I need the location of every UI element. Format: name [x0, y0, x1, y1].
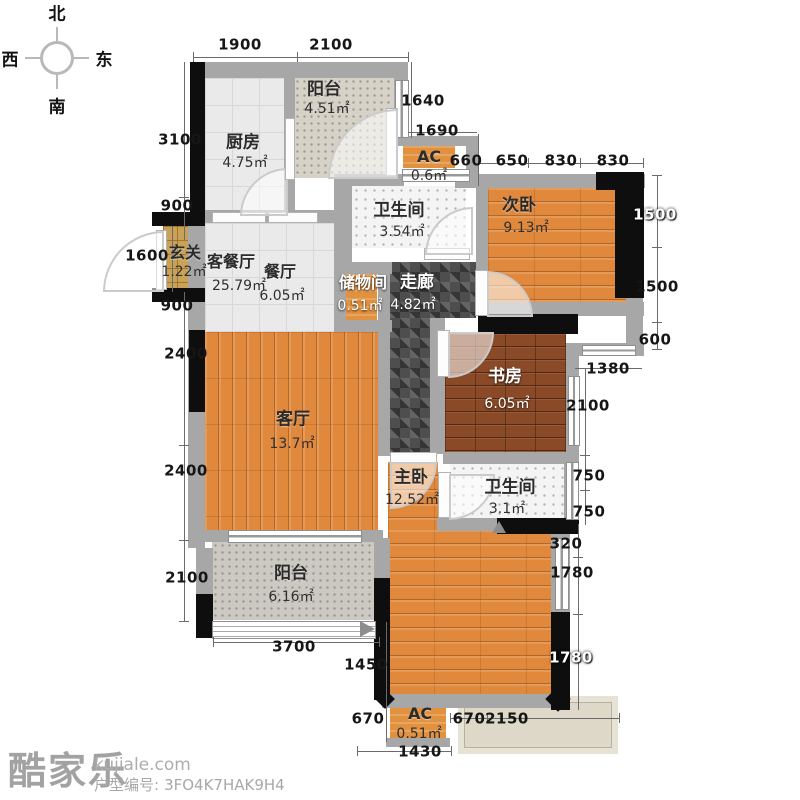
dim-tick [379, 637, 380, 647]
compass-south-label: 南 [49, 93, 66, 118]
balcony-arrow-icon [360, 621, 375, 637]
room-balcony-top-name: 阳台 [307, 82, 341, 99]
kitchen-divider-door-leaf [285, 118, 295, 180]
dim-label-900b: 900 [161, 299, 194, 314]
dim-tick [179, 445, 189, 446]
compass-west-label: 西 [2, 46, 19, 71]
dim-tick [408, 52, 409, 62]
dim-tick [619, 713, 620, 723]
wall-balcony-bottom-right-up [374, 538, 390, 580]
dim-label-1500a: 1500 [633, 208, 677, 223]
dim-label-830b: 830 [597, 154, 630, 169]
room-ac-top-name: AC [417, 149, 441, 165]
dim-tick [580, 490, 590, 491]
dim-label-670a: 670 [352, 712, 385, 727]
dim-tick [451, 746, 452, 756]
room-study-name: 书房 [488, 369, 522, 386]
room-entry-name: 玄关 [169, 245, 201, 261]
balcony-bottom-slider [228, 530, 362, 543]
dim-label-2400a: 2400 [164, 347, 208, 362]
dim-tick [193, 52, 194, 62]
corridor-floor-v [390, 318, 430, 452]
dim-label-1640: 1640 [401, 94, 445, 109]
room-ac-bottom-name: AC [408, 706, 432, 722]
compass-circle-icon [40, 41, 74, 75]
room-storage-name: 储物间 [339, 275, 387, 291]
dim-label-2100-top: 2100 [309, 38, 353, 53]
window-step [582, 345, 636, 356]
room-bath-top-name: 卫生间 [374, 203, 425, 220]
window-balcony-bottom-band [212, 621, 376, 639]
living-floor [205, 332, 378, 530]
dim-label-1780a: 1780 [550, 566, 594, 581]
dim-label-1600: 1600 [125, 249, 169, 264]
dim-tick [450, 713, 451, 723]
room-master-area: 12.52㎡ [385, 493, 439, 507]
dim-label-2100-left: 2100 [165, 571, 209, 586]
room-corridor-name: 走廊 [400, 275, 434, 292]
dim-tick [652, 175, 662, 176]
dim-line [386, 697, 387, 742]
dim-line [193, 57, 408, 58]
room-bath-top-area: 3.54㎡ [379, 225, 424, 239]
bath-arrow-icon [492, 521, 506, 533]
room-living-dining-name: 客餐厅 [207, 254, 255, 270]
dim-label-830a: 830 [545, 154, 578, 169]
room-bedroom2-area: 9.13㎡ [503, 221, 548, 235]
room-kitchen-name: 厨房 [226, 135, 260, 152]
wall-bath-top-left [334, 174, 352, 274]
wall-bath-bottom-top [443, 452, 579, 464]
room-living-dining-area: 25.79㎡ [212, 279, 266, 293]
dim-label-2400b: 2400 [164, 464, 208, 479]
dim-tick [179, 621, 189, 622]
dim-tick [580, 455, 590, 456]
dim-tick [573, 614, 583, 615]
floorplan-canvas: 北 西 东 南 [0, 0, 800, 800]
room-ac-top-area: 0.6㎡ [411, 169, 447, 183]
compass-east-label: 东 [96, 46, 113, 71]
wall-black-left-mid [189, 330, 205, 412]
dim-tick [297, 52, 298, 62]
dim-label-670b: 670 [453, 712, 486, 727]
dim-label-3700: 3700 [272, 640, 316, 655]
room-corridor-area: 4.82㎡ [390, 298, 435, 312]
room-living-area: 13.7㎡ [269, 437, 314, 451]
dim-tick [179, 540, 189, 541]
dim-tick [652, 349, 662, 350]
dim-tick [580, 158, 581, 168]
dim-tick [643, 158, 644, 168]
wall-bath-bottom-left-low [437, 518, 499, 531]
dim-label-900a: 900 [161, 199, 194, 214]
room-master-name: 主卧 [394, 470, 428, 487]
dim-label-3100: 3100 [158, 133, 202, 148]
dim-label-1430: 1430 [398, 745, 442, 760]
dim-label-2150: 2150 [485, 712, 529, 727]
dim-tick [213, 637, 214, 647]
dim-label-1450: 1450 [344, 658, 388, 673]
room-dining-name: 餐厅 [264, 264, 296, 280]
room-study-area: 6.05㎡ [484, 397, 529, 411]
dim-tick [652, 247, 662, 248]
dim-label-320: 320 [550, 537, 583, 552]
room-balcony-bottom-area: 6.16㎡ [268, 590, 313, 604]
wall-black-study-top [478, 314, 578, 334]
plan-code-line: 户型编号: 3FO4K7HAK9H4 [94, 778, 285, 793]
plan-code-value: 3FO4K7HAK9H4 [164, 778, 285, 793]
room-bath-bottom-name: 卫生间 [485, 480, 536, 497]
dim-label-750a: 750 [573, 469, 606, 484]
dim-label-1690: 1690 [415, 124, 459, 139]
kujiale-site-url: kujiale.com [94, 757, 191, 774]
dim-label-1380: 1380 [586, 362, 630, 377]
compass-north-label: 北 [49, 0, 66, 25]
wall-top [190, 62, 408, 78]
dim-tick [357, 746, 358, 756]
dim-label-660: 660 [450, 154, 483, 169]
dim-tick [573, 557, 583, 558]
dim-line [657, 175, 658, 350]
wall-black-bath-bottom [497, 518, 579, 534]
room-storage-area: 0.51㎡ [337, 299, 382, 313]
room-balcony-bottom-name: 阳台 [274, 566, 308, 583]
master-floor-main [388, 530, 553, 695]
wall-black-balcony-bottom-left [196, 594, 213, 638]
room-bath-bottom-area: 3.1㎡ [489, 502, 525, 516]
dim-tick [652, 322, 662, 323]
room-dining-area: 6.05㎡ [259, 289, 304, 303]
dim-label-1900: 1900 [218, 38, 262, 53]
room-bedroom2-name: 次卧 [502, 198, 536, 215]
plan-code-label: 户型编号: [94, 778, 159, 793]
dim-label-600: 600 [639, 333, 672, 348]
room-living-name: 客厅 [276, 412, 310, 429]
wall-bedroom2-left [476, 188, 488, 272]
dim-label-650: 650 [496, 154, 529, 169]
dim-label-750b: 750 [573, 505, 606, 520]
room-kitchen-area: 4.75㎡ [222, 156, 267, 170]
dim-label-1500b: 1500 [635, 280, 679, 295]
dim-label-2100-right: 2100 [566, 399, 610, 414]
dim-line [585, 368, 586, 525]
room-balcony-top-area: 4.51㎡ [304, 102, 349, 116]
wall-black-balcony-bottom-right [374, 578, 390, 700]
dim-label-1780b: 1780 [549, 651, 593, 666]
room-ac-bottom-area: 0.51㎡ [396, 727, 441, 741]
room-entry-area: 1.22㎡ [161, 265, 206, 279]
